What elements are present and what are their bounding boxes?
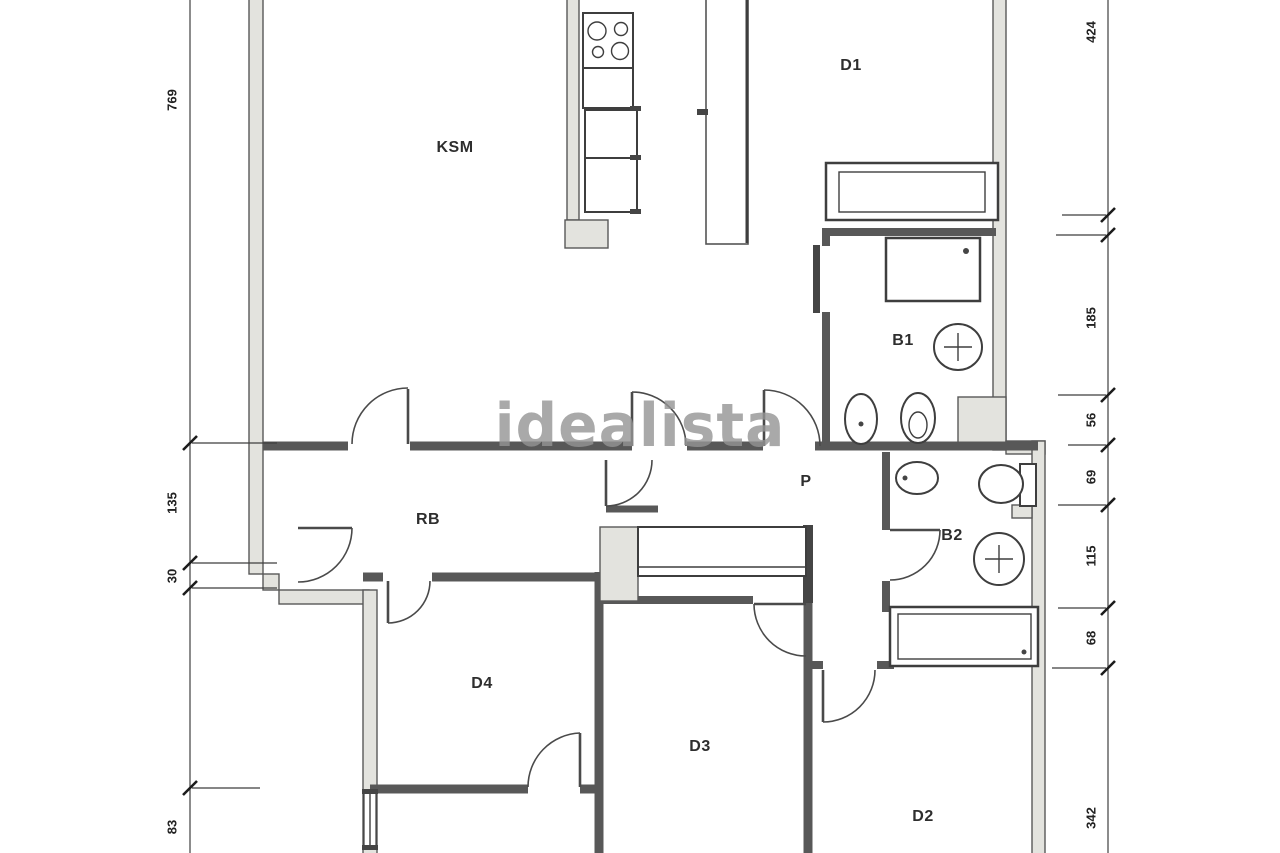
watermark: idealista [495, 391, 786, 461]
room-label-b2: B2 [941, 527, 962, 545]
toilet-b2 [979, 464, 1036, 506]
window-d4 [362, 789, 378, 850]
door-arc-ksm-rb [352, 388, 408, 444]
door-leaf-b1 [813, 245, 820, 313]
room-label-p: P [800, 473, 811, 491]
room-label-d3: D3 [689, 738, 710, 756]
kitchen-counter [583, 68, 641, 214]
door-arc-rb-entry [298, 528, 352, 582]
room-label-b1: B1 [892, 332, 913, 350]
stove-icon [583, 13, 633, 68]
room-label-ksm: KSM [436, 139, 473, 157]
toilet-b1 [901, 393, 935, 443]
cabinet-d2 [890, 607, 1038, 666]
room-label-d2: D2 [912, 808, 933, 826]
kitchen-wall-end-block [565, 220, 608, 248]
left-outer-wall [249, 0, 263, 574]
dim-label-left-30: 30 [165, 569, 180, 583]
room-label-rb: RB [416, 511, 440, 529]
dim-label-left-83: 83 [165, 820, 180, 834]
doors [298, 245, 940, 787]
door-arc-d4 [388, 581, 430, 623]
sink-b1 [934, 324, 982, 370]
dim-label-right-115: 115 [1084, 546, 1099, 567]
dim-label-left-135: 135 [165, 492, 180, 514]
dim-label-right-342: 342 [1084, 807, 1099, 829]
door-arc-d4-bottom [528, 733, 580, 787]
room-label-d4: D4 [471, 675, 492, 693]
door-arc-d2 [823, 670, 875, 722]
dim-label-right-56: 56 [1084, 413, 1099, 427]
bidet-b1 [845, 394, 877, 444]
hall-wardrobe [638, 527, 806, 576]
door-arc-rb-p [606, 460, 652, 506]
dim-label-right-69: 69 [1084, 470, 1099, 484]
ksm-d1-partition [706, 0, 748, 244]
partition-tick [697, 109, 708, 115]
dim-label-right-424: 424 [1084, 21, 1099, 43]
shower-b1 [886, 238, 980, 301]
dim-label-right-68: 68 [1084, 631, 1099, 645]
b1-niche-wall [958, 397, 1006, 447]
wardrobe-d1 [826, 163, 998, 220]
bidet-b2 [896, 462, 938, 494]
left-wall-step-run [279, 590, 369, 604]
kitchen-wall-strip [567, 0, 579, 220]
door-arc-d3 [754, 604, 806, 656]
room-label-d1: D1 [840, 57, 861, 75]
hall-column-block [600, 527, 638, 601]
dim-label-left-769: 769 [165, 89, 180, 111]
dim-label-right-185: 185 [1084, 307, 1099, 329]
sink-b2 [974, 533, 1024, 585]
floorplan-canvas: idealista KSM D1 B1 P RB B2 D4 D3 D2 769… [0, 0, 1280, 853]
right-wall-upper [993, 0, 1006, 450]
door-arc-b2 [890, 530, 940, 580]
